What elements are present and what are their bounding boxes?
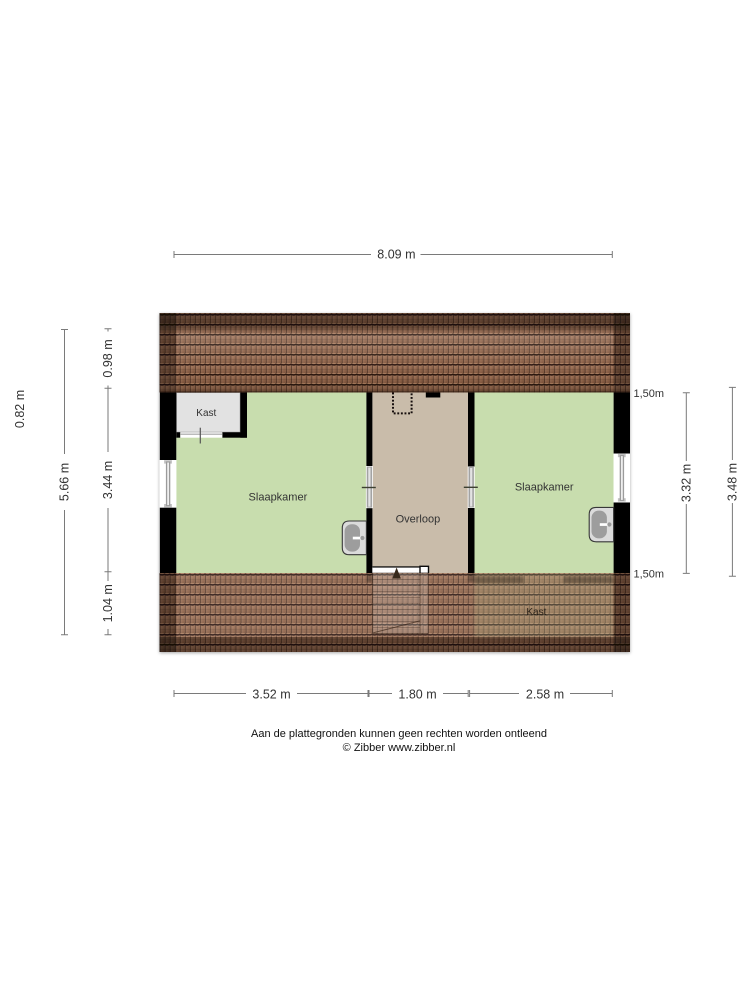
svg-text:3.44 m: 3.44 m [101,461,115,499]
svg-text:1.80 m: 1.80 m [398,688,436,702]
svg-text:Overloop: Overloop [396,514,441,526]
svg-text:1.04 m: 1.04 m [101,584,115,622]
svg-text:3.32 m: 3.32 m [679,464,693,502]
svg-text:0.98 m: 0.98 m [101,339,115,377]
svg-text:3.48 m: 3.48 m [725,463,739,501]
svg-text:0.82 m: 0.82 m [13,390,27,428]
svg-text:Aan de plattegronden kunnen ge: Aan de plattegronden kunnen geen rechten… [251,728,547,740]
svg-text:2.58 m: 2.58 m [526,688,564,702]
svg-text:Slaapkamer: Slaapkamer [515,482,574,494]
svg-text:5.66 m: 5.66 m [58,463,72,501]
svg-text:8.09 m: 8.09 m [377,247,415,261]
svg-text:Slaapkamer: Slaapkamer [249,492,308,504]
svg-text:Kast: Kast [196,408,216,419]
svg-text:3.52 m: 3.52 m [252,688,290,702]
svg-text:1,50m: 1,50m [634,388,665,400]
svg-text:Kast: Kast [526,607,546,618]
svg-text:© Zibber www.zibber.nl: © Zibber www.zibber.nl [343,742,456,754]
svg-text:1,50m: 1,50m [634,569,665,581]
